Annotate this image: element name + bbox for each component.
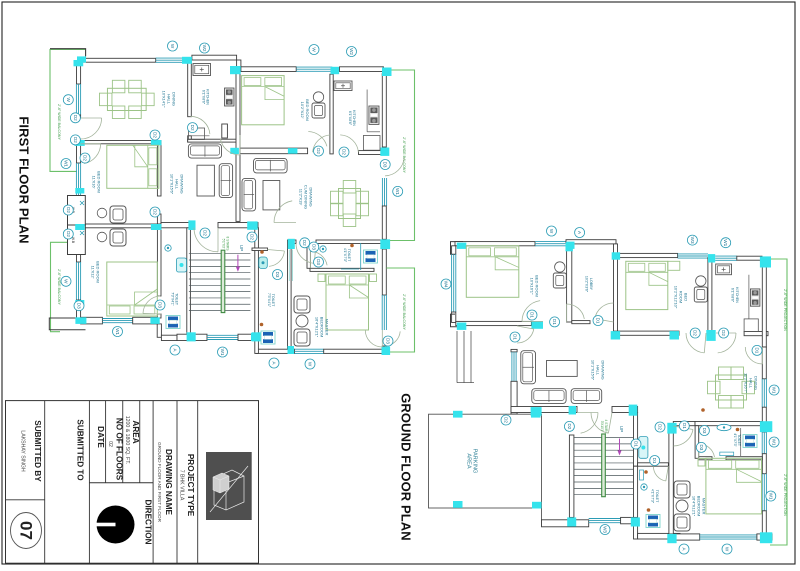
- svg-text:D2: D2: [73, 137, 78, 143]
- svg-text:W2: W2: [202, 45, 207, 52]
- svg-text:PARKING: PARKING: [472, 449, 478, 474]
- svg-text:TOILET: TOILET: [655, 490, 659, 503]
- svg-text:FIRST FLOOR PLAN: FIRST FLOOR PLAN: [17, 116, 32, 243]
- svg-text:10'1"X15'6": 10'1"X15'6": [170, 174, 175, 195]
- svg-text:7 BHK VILLA: 7 BHK VILLA: [179, 470, 185, 501]
- svg-text:6'1"X8'6": 6'1"X8'6": [348, 111, 352, 126]
- svg-text:D1: D1: [552, 319, 557, 325]
- svg-text:16'4"X12'1": 16'4"X12'1": [315, 317, 320, 338]
- svg-text:W4: W4: [444, 281, 449, 288]
- svg-text:10'2"X12': 10'2"X12': [300, 102, 305, 119]
- svg-text:2'-6" WIDE PROJECTION: 2'-6" WIDE PROJECTION: [783, 474, 787, 516]
- svg-text:D2: D2: [316, 148, 321, 154]
- svg-text:W1: W1: [772, 387, 777, 394]
- svg-text:KITCHEN: KITCHEN: [206, 89, 210, 105]
- svg-text:TOILET: TOILET: [347, 249, 351, 262]
- svg-text:GROUND FLOOR PLAN: GROUND FLOOR PLAN: [399, 393, 414, 541]
- svg-text:4'1"X7'3": 4'1"X7'3": [343, 248, 347, 263]
- svg-text:10'2"X12'10": 10'2"X12'10": [674, 286, 679, 309]
- svg-text:D1: D1: [652, 458, 657, 464]
- svg-text:10'1"X15'6": 10'1"X15'6": [591, 360, 596, 381]
- svg-text:D2: D2: [66, 207, 71, 213]
- svg-text:4'1"X7'3": 4'1"X7'3": [733, 433, 737, 447]
- svg-text:W: W: [312, 47, 317, 52]
- svg-text:D2: D2: [153, 132, 158, 138]
- svg-text:D2: D2: [73, 115, 78, 121]
- svg-text:W1: W1: [395, 188, 400, 195]
- svg-text:AREA: AREA: [465, 453, 471, 469]
- svg-text:D2: D2: [203, 230, 208, 236]
- svg-text:10'2"X3'6": 10'2"X3'6": [584, 276, 588, 293]
- svg-text:SUBMITTED BY: SUBMITTED BY: [33, 420, 42, 482]
- svg-text:D2: D2: [302, 240, 307, 246]
- svg-text:D2: D2: [567, 423, 572, 429]
- svg-text:W3: W3: [603, 526, 608, 533]
- svg-text:11'X12': 11'X12': [91, 266, 96, 279]
- svg-text:2'-6" WIDE BALCONY: 2'-6" WIDE BALCONY: [57, 269, 61, 305]
- svg-text:6'1"X8'6": 6'1"X8'6": [730, 288, 734, 303]
- svg-text:W1: W1: [115, 328, 120, 335]
- svg-text:10'X14'1": 10'X14'1": [162, 91, 167, 108]
- svg-text:KITCHEN: KITCHEN: [352, 110, 356, 126]
- svg-text:2'-6" WIDE BALCONY: 2'-6" WIDE BALCONY: [402, 137, 406, 173]
- svg-text:D1: D1: [682, 423, 687, 429]
- svg-text:4'1"X7'3": 4'1"X7'3": [651, 489, 655, 504]
- svg-text:W: W: [66, 98, 71, 103]
- svg-text:D2: D2: [153, 209, 158, 215]
- svg-text:D2: D2: [190, 125, 195, 131]
- svg-text:W: W: [64, 279, 69, 284]
- svg-text:D2: D2: [250, 234, 255, 240]
- svg-text:DATE: DATE: [96, 426, 105, 448]
- svg-text:D1: D1: [596, 318, 601, 324]
- svg-text:UP: UP: [619, 426, 624, 432]
- svg-text:D3: D3: [311, 244, 316, 250]
- svg-text:GROUND FLOOR AND FIRST FLOOR: GROUND FLOOR AND FIRST FLOOR: [157, 442, 162, 522]
- svg-text:10'X16'1": 10'X16'1": [530, 278, 535, 295]
- svg-text:W: W: [170, 44, 175, 49]
- svg-text:D1: D1: [755, 347, 760, 353]
- svg-text:D2: D2: [342, 149, 347, 155]
- svg-text:D2: D2: [504, 417, 509, 423]
- svg-text:DRAWING NAME: DRAWING NAME: [164, 449, 173, 515]
- svg-text:D2: D2: [721, 330, 726, 336]
- svg-text:D3: D3: [275, 272, 280, 278]
- svg-text:W1: W1: [64, 160, 69, 167]
- svg-text:2'-6" WIDE PROJECTION: 2'-6" WIDE PROJECTION: [783, 289, 787, 331]
- svg-text:D1: D1: [634, 441, 639, 447]
- svg-text:W: W: [308, 362, 313, 367]
- svg-text:W1: W1: [220, 349, 225, 356]
- svg-text:KITCHEN: KITCHEN: [735, 287, 739, 303]
- svg-text:D2: D2: [83, 155, 88, 161]
- svg-text:D3: D3: [702, 428, 707, 434]
- svg-text:D2: D2: [66, 231, 71, 237]
- svg-text:2'-6" WIDE BALCONY: 2'-6" WIDE BALCONY: [402, 294, 406, 330]
- svg-text:D3: D3: [77, 303, 82, 309]
- svg-text:07: 07: [17, 521, 36, 540]
- svg-text:W1: W1: [723, 239, 728, 246]
- svg-text:D1: D1: [530, 312, 535, 318]
- svg-text:02: 02: [107, 441, 113, 447]
- svg-text:5'1"X3': 5'1"X3': [222, 239, 226, 249]
- svg-text:W1: W1: [772, 439, 777, 446]
- svg-text:W2: W2: [349, 48, 354, 55]
- svg-text:W3: W3: [690, 237, 695, 244]
- svg-text:11'2"X16'7": 11'2"X16'7": [744, 373, 749, 394]
- svg-text:W1: W1: [768, 493, 773, 500]
- svg-text:SUBMITTED TO: SUBMITTED TO: [76, 419, 85, 481]
- svg-text:2'-6" WIDE BALCONY: 2'-6" WIDE BALCONY: [57, 104, 61, 140]
- svg-text:W: W: [549, 229, 554, 234]
- svg-text:DIRECTION: DIRECTION: [144, 499, 153, 544]
- svg-text:D3: D3: [383, 162, 388, 168]
- svg-text:6'1"X8'6": 6'1"X8'6": [201, 90, 205, 105]
- svg-text:1200 & 1800 SQ. FT.: 1200 & 1800 SQ. FT.: [124, 416, 130, 464]
- svg-text:7'3"X4'1": 7'3"X4'1": [170, 292, 174, 306]
- svg-text:11'X16': 11'X16': [92, 176, 97, 189]
- svg-text:LOBBY: LOBBY: [589, 278, 593, 291]
- svg-text:D3: D3: [386, 338, 391, 344]
- svg-text:D3: D3: [158, 302, 163, 308]
- svg-text:D2: D2: [693, 330, 698, 336]
- svg-text:TOILET: TOILET: [271, 294, 275, 307]
- svg-text:AREA: AREA: [131, 420, 140, 443]
- svg-text:D3: D3: [699, 444, 704, 450]
- svg-text:LAKSHAY SINGH: LAKSHAY SINGH: [20, 430, 26, 472]
- svg-text:16'4"X12'1": 16'4"X12'1": [692, 496, 697, 517]
- svg-text:UP: UP: [239, 245, 244, 251]
- svg-text:D3: D3: [316, 259, 321, 265]
- svg-text:NO OF FLOORS: NO OF FLOORS: [115, 418, 124, 481]
- svg-text:D2: D2: [658, 424, 663, 430]
- svg-text:D1: D1: [513, 334, 518, 340]
- svg-text:11'2"X19': 11'2"X19': [299, 189, 304, 206]
- svg-text:PROJECT TYPE: PROJECT TYPE: [186, 454, 195, 517]
- svg-text:W: W: [725, 547, 730, 552]
- svg-text:7'3"X4'1": 7'3"X4'1": [267, 293, 271, 308]
